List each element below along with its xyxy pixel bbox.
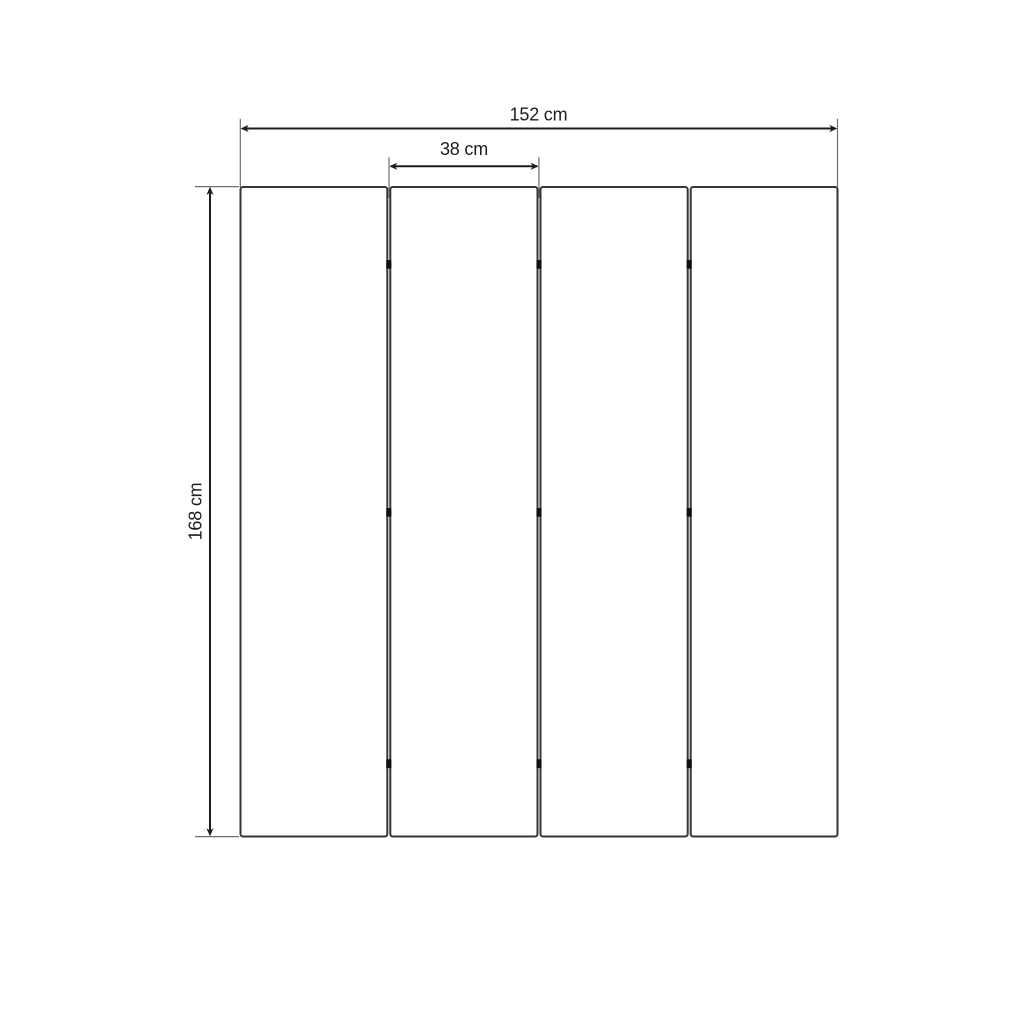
- svg-text:168 cm: 168 cm: [186, 483, 206, 541]
- svg-text:38 cm: 38 cm: [440, 139, 488, 159]
- svg-text:152 cm: 152 cm: [510, 104, 568, 124]
